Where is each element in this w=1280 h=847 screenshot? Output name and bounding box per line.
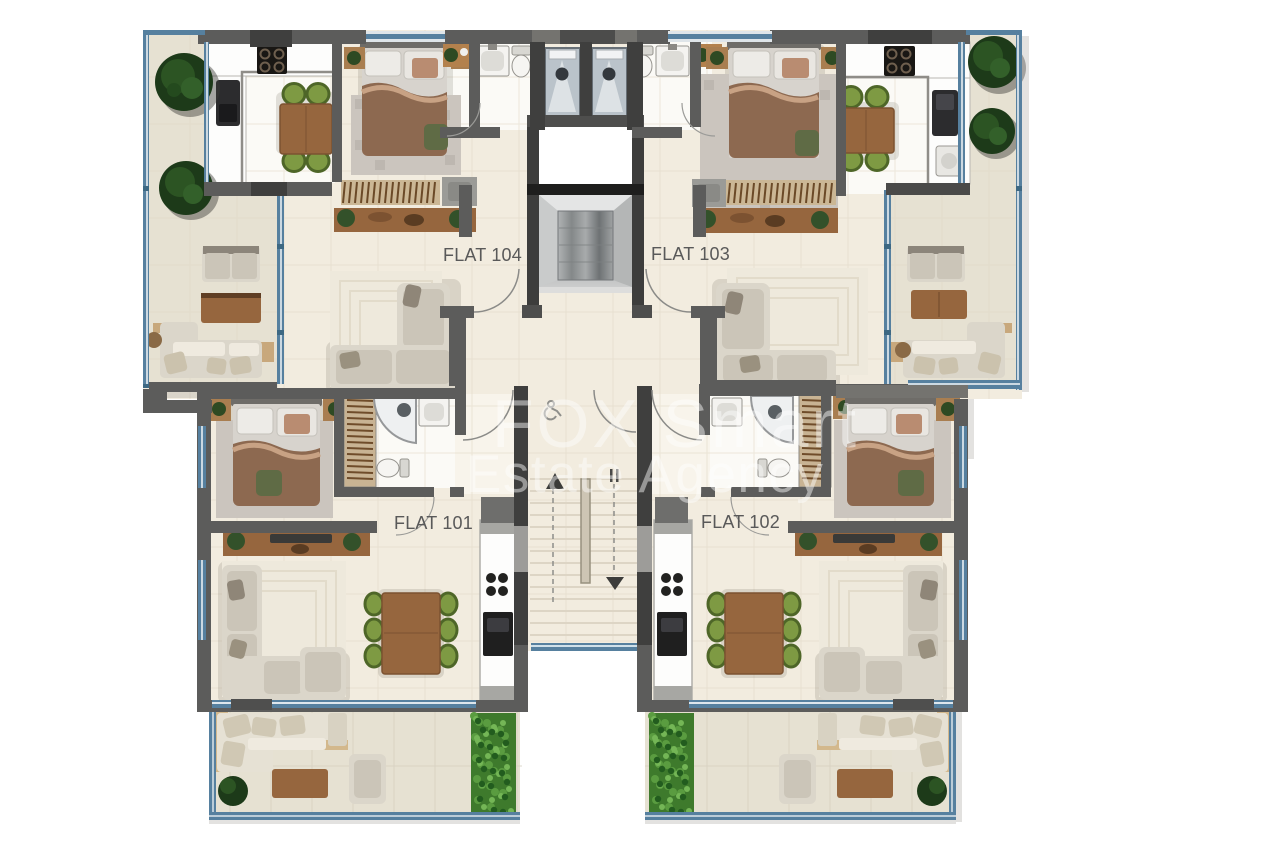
svg-text:FLAT 102: FLAT 102 — [701, 512, 780, 532]
svg-text:FLAT 101: FLAT 101 — [394, 513, 473, 533]
svg-text:Estate Agency: Estate Agency — [466, 445, 824, 504]
svg-text:FLAT 103: FLAT 103 — [651, 244, 730, 264]
svg-text:FLAT 104: FLAT 104 — [443, 245, 522, 265]
